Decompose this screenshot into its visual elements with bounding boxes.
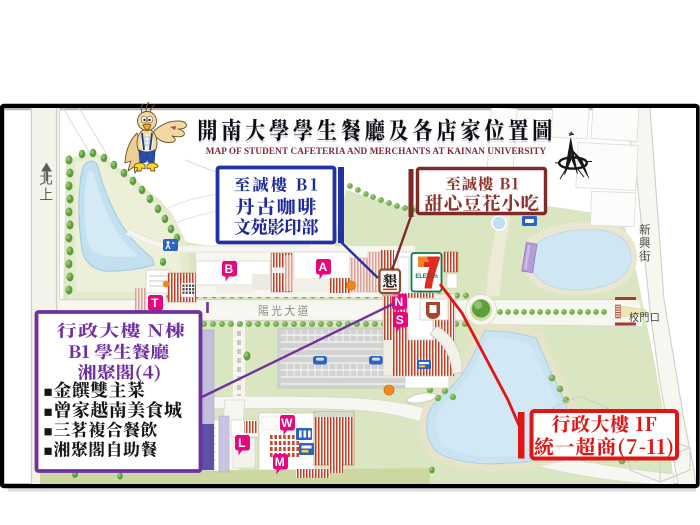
svg-text:L: L — [238, 436, 245, 450]
svg-text:ELEVEn: ELEVEn — [415, 274, 438, 280]
svg-text:MAP OF STUDENT CAFETERIA AND M: MAP OF STUDENT CAFETERIA AND MERCHANTS A… — [206, 146, 547, 156]
svg-text:M: M — [275, 455, 285, 469]
svg-text:B: B — [224, 262, 233, 276]
svg-text:N: N — [394, 295, 403, 309]
svg-text:S: S — [396, 313, 404, 327]
svg-text:A: A — [318, 260, 327, 274]
svg-text:T: T — [151, 296, 159, 310]
svg-text:W: W — [281, 416, 293, 430]
